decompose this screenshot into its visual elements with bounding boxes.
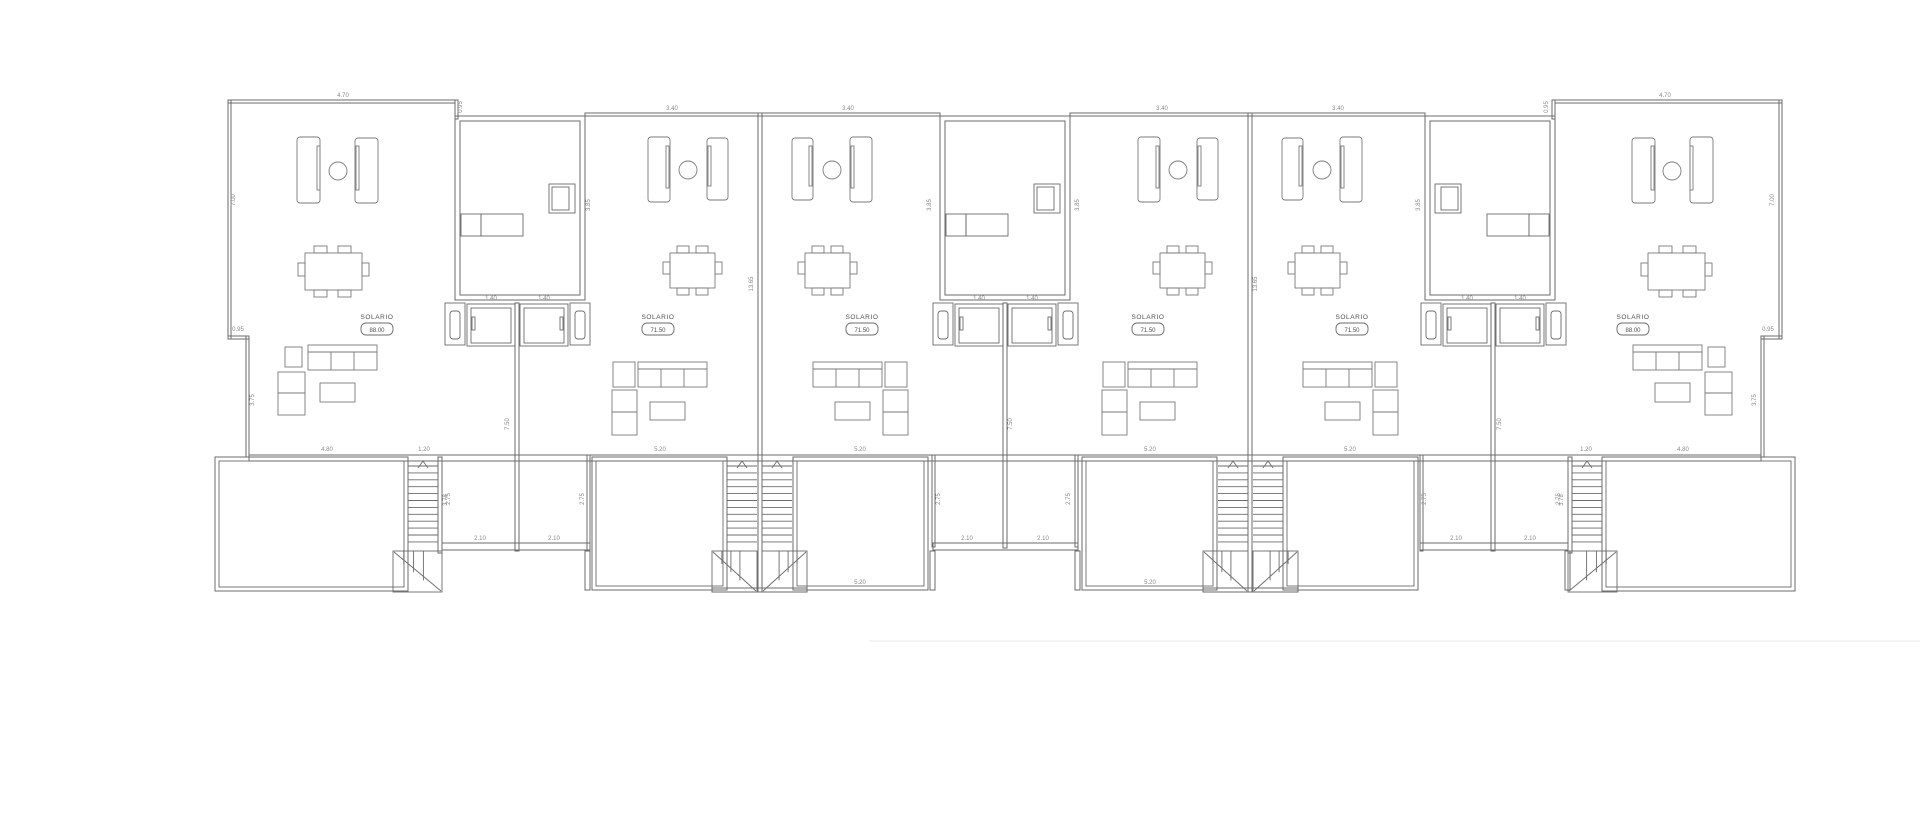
- side-table: [1375, 362, 1397, 387]
- coffee-table: [1140, 402, 1175, 420]
- dimension-text: 5.20: [1344, 447, 1356, 453]
- bulkhead-inner-wall: [945, 121, 1065, 295]
- wall-segment: [246, 336, 249, 457]
- stair-winder-diagonal: [394, 552, 441, 591]
- dimension-text: 5.20: [854, 447, 866, 453]
- terrace-outline: [1602, 457, 1795, 591]
- dimension-text: 2.10: [548, 536, 560, 542]
- stair-bulkheads: [455, 116, 1555, 300]
- dimension-text: 3.40: [1156, 106, 1168, 112]
- terrace-inner-line: [1606, 461, 1791, 587]
- bulkhead-bench: [1529, 214, 1549, 236]
- bulkhead-inner-wall: [1430, 121, 1550, 295]
- furniture-unit-e: [1282, 137, 1398, 435]
- dining-chair: [850, 262, 857, 274]
- stair-winder-diagonal: [1204, 552, 1247, 591]
- storage-box-inner: [1447, 308, 1487, 343]
- wall-segment: [1779, 100, 1782, 339]
- dimension-text: 3.40: [1332, 106, 1344, 112]
- unit-room-label: SOLARIO: [1335, 314, 1368, 321]
- dining-chair: [1321, 288, 1333, 295]
- sun-lounger-side: [851, 146, 854, 188]
- dining-chair: [831, 246, 843, 253]
- wall-segment: [228, 100, 455, 103]
- side-table-round: [1663, 162, 1681, 180]
- dimension-text: 5.20: [1144, 580, 1156, 586]
- sofa: [1633, 345, 1702, 370]
- sun-lounger-side: [666, 146, 669, 188]
- terrace-inner-line: [219, 461, 404, 587]
- walls: [228, 100, 1782, 592]
- sun-lounger: [850, 137, 872, 202]
- wall-segment: [932, 455, 935, 547]
- coffee-table: [1655, 383, 1690, 402]
- storage-box-slot: [1063, 311, 1073, 339]
- sofa: [638, 362, 707, 387]
- wall-segment: [249, 455, 1761, 461]
- wall-segment: [515, 303, 519, 551]
- sun-lounger: [792, 138, 813, 200]
- dining-chair: [1641, 263, 1648, 276]
- sofa: [813, 362, 882, 387]
- dining-chair: [1288, 262, 1295, 274]
- dimension-text: 1.20: [1580, 447, 1592, 453]
- terrace-inner-line: [797, 461, 924, 586]
- dimension-text: 3.75: [1752, 394, 1758, 406]
- stair-up-arrow: [418, 461, 428, 468]
- sofa: [1128, 362, 1197, 387]
- wall-segment: [1491, 303, 1495, 551]
- side-table: [885, 362, 907, 387]
- storage-box: [467, 304, 515, 346]
- dining-chair: [1321, 246, 1333, 253]
- terrace-outline: [1283, 457, 1418, 590]
- storage-box-slot: [450, 311, 460, 339]
- sun-lounger-side: [1156, 146, 1159, 188]
- sun-lounger-side: [1198, 146, 1201, 186]
- dining-chair: [1659, 290, 1672, 297]
- furniture-unit-d: [1102, 137, 1218, 435]
- unit-area-label: 71.50: [854, 328, 870, 334]
- dimension-text: 4.80: [1677, 447, 1689, 453]
- sun-lounger-side: [1651, 146, 1654, 190]
- terrace-outline: [215, 457, 408, 591]
- side-table-round: [1169, 161, 1187, 179]
- dimension-text: 3.85: [1416, 199, 1422, 211]
- storage-box-inner: [524, 308, 564, 343]
- side-table-round: [679, 161, 697, 179]
- wall-segment: [1565, 551, 1570, 590]
- dimension-text: 7.50: [1497, 418, 1503, 430]
- storage-box: [520, 304, 568, 346]
- side-table: [1708, 347, 1725, 367]
- wall-segment: [1075, 551, 1080, 590]
- wall-segment: [1420, 543, 1568, 550]
- dimension-text: 0.95: [458, 101, 464, 113]
- dining-table: [670, 253, 715, 288]
- dimension-text: 1.40: [973, 296, 985, 302]
- storage-units: [445, 303, 1566, 346]
- storage-box-handle: [1536, 317, 1539, 330]
- dimension-text: 13.65: [749, 276, 755, 292]
- dimension-text: 2.75: [1066, 493, 1072, 505]
- sun-lounger: [707, 138, 728, 200]
- dining-chair: [677, 288, 689, 295]
- dimension-text: 4.70: [1659, 93, 1671, 99]
- floor-plan-drawing: SOLARIO88.00SOLARIO71.50SOLARIO71.50SOLA…: [0, 0, 1920, 837]
- dimension-text: 1.40: [1461, 296, 1473, 302]
- dimension-text: 3.85: [586, 199, 592, 211]
- bulkhead-inner-wall: [460, 121, 580, 295]
- storage-box-slot: [938, 311, 948, 339]
- dining-chair: [1167, 288, 1179, 295]
- bulkhead-hatch-inner: [1037, 187, 1054, 210]
- furniture-unit-c: [792, 137, 908, 435]
- storage-box-handle: [472, 317, 475, 330]
- wall-segment: [1003, 303, 1007, 548]
- dining-chair: [831, 288, 843, 295]
- dining-chair: [1302, 246, 1314, 253]
- side-table: [1103, 362, 1125, 387]
- dimension-text: 5.20: [654, 447, 666, 453]
- sun-lounger-side: [356, 146, 359, 190]
- stair-up-arrow: [737, 461, 747, 468]
- storage-box-inner: [1012, 308, 1052, 343]
- unit-room-label: SOLARIO: [845, 314, 878, 321]
- sun-lounger-side: [708, 146, 711, 186]
- coffee-table: [835, 402, 870, 420]
- side-table-round: [1313, 161, 1331, 179]
- bulkhead-hatch: [1034, 184, 1060, 213]
- dimension-text: 1.20: [418, 447, 430, 453]
- stair-winder-diagonal: [713, 552, 756, 591]
- coffee-table: [650, 402, 685, 420]
- dimension-text: 5.20: [1144, 447, 1156, 453]
- terrace-outline: [592, 457, 727, 590]
- stair-winder-diagonal: [763, 552, 806, 591]
- dining-chair: [1153, 262, 1160, 274]
- dimension-text: 3.78: [443, 494, 449, 506]
- sofa: [308, 345, 377, 370]
- armchair: [1102, 390, 1127, 435]
- dining-table: [805, 253, 850, 288]
- dining-chair: [1167, 246, 1179, 253]
- storage-box: [1443, 304, 1491, 346]
- stair-up-arrow: [1263, 461, 1273, 468]
- dimension-text: 7.50: [1008, 418, 1014, 430]
- unit-labels: SOLARIO88.00SOLARIO71.50SOLARIO71.50SOLA…: [360, 314, 1649, 335]
- storage-box-slot: [1426, 311, 1436, 339]
- unit-room-label: SOLARIO: [1616, 314, 1649, 321]
- sun-lounger: [1197, 138, 1218, 200]
- dimension-text: 2.75: [1422, 493, 1428, 505]
- storage-box-handle: [1048, 317, 1051, 330]
- storage-box-inner: [471, 308, 511, 343]
- bulkhead-bench: [481, 214, 523, 236]
- wall-segment: [1761, 336, 1764, 457]
- sun-lounger: [297, 137, 320, 203]
- dining-chair: [314, 290, 327, 297]
- bulkhead-outer-wall: [1425, 116, 1555, 300]
- stair-winder-diagonal: [1569, 552, 1616, 591]
- dimension-text: 2.10: [961, 536, 973, 542]
- coffee-table: [1325, 402, 1360, 420]
- dining-chair: [1186, 246, 1198, 253]
- dining-chair: [1705, 263, 1712, 276]
- dining-table: [305, 253, 362, 290]
- dimension-text: 4.70: [337, 93, 349, 99]
- stair-up-arrow: [1582, 461, 1592, 468]
- dining-chair: [1683, 290, 1696, 297]
- dining-chair: [362, 263, 369, 276]
- dining-chair: [298, 263, 305, 276]
- dimension-text: 0.95: [232, 327, 244, 333]
- dining-chair: [1302, 288, 1314, 295]
- unit-area-label: 71.50: [1344, 328, 1360, 334]
- sun-lounger: [1138, 137, 1160, 202]
- bulkhead-hatch-inner: [1441, 187, 1458, 210]
- storage-box: [1496, 304, 1544, 346]
- storage-box-handle: [560, 317, 563, 330]
- wall-segment: [442, 543, 590, 550]
- dining-table: [1295, 253, 1340, 288]
- storage-box-handle: [960, 317, 963, 330]
- sun-lounger-side: [1690, 146, 1693, 190]
- side-table-round: [329, 162, 347, 180]
- side-table: [285, 347, 302, 367]
- terrace-outline: [1082, 457, 1217, 590]
- staircases: [393, 461, 1617, 592]
- dimension-text: 7.00: [231, 194, 237, 206]
- dimension-text: 0.95: [1762, 327, 1774, 333]
- storage-box: [1008, 304, 1056, 346]
- dimension-text: 0.95: [1544, 101, 1550, 113]
- unit-area-label: 71.50: [1140, 328, 1156, 334]
- dining-table: [1160, 253, 1205, 288]
- bulkhead-bench: [966, 214, 1008, 236]
- dining-chair: [314, 246, 327, 253]
- dimension-text: 3.85: [927, 199, 933, 211]
- sun-lounger-side: [809, 146, 812, 186]
- sun-lounger-side: [1299, 146, 1302, 186]
- dining-chair: [696, 246, 708, 253]
- sun-lounger: [1632, 138, 1655, 203]
- terrace-outline: [793, 457, 928, 590]
- furniture-unit-f: [1632, 137, 1732, 415]
- terrace-inner-line: [1086, 461, 1213, 586]
- dimension-text: 3.75: [250, 394, 256, 406]
- dimension-text: 1.40: [538, 296, 550, 302]
- side-table-round: [823, 161, 841, 179]
- sun-lounger-side: [1341, 146, 1344, 188]
- dining-chair: [338, 246, 351, 253]
- wall-segment: [228, 100, 231, 339]
- wall-segment: [758, 113, 762, 592]
- sun-lounger: [355, 138, 378, 203]
- dimension-text: 2.10: [1450, 536, 1462, 542]
- armchair: [278, 372, 305, 415]
- dimension-text: 4.80: [321, 447, 333, 453]
- sun-lounger: [1282, 138, 1303, 200]
- dimension-text: 5.20: [854, 580, 866, 586]
- dining-chair: [1186, 288, 1198, 295]
- dining-chair: [715, 262, 722, 274]
- dimension-text: 1.40: [485, 296, 497, 302]
- terrace-inner-line: [1287, 461, 1414, 586]
- dining-chair: [1659, 246, 1672, 253]
- dining-chair: [798, 262, 805, 274]
- sun-lounger: [1340, 137, 1362, 202]
- dimension-text: 3.85: [1075, 199, 1081, 211]
- wall-segment: [930, 551, 935, 590]
- wall-segment: [933, 543, 1078, 550]
- dining-chair: [1205, 262, 1212, 274]
- dining-chair: [1340, 262, 1347, 274]
- dimension-text: 2.75: [580, 493, 586, 505]
- dimension-text: 3.78: [1559, 494, 1565, 506]
- coffee-table: [320, 383, 355, 402]
- dimension-text: 3.40: [842, 106, 854, 112]
- storage-box-slot: [575, 311, 585, 339]
- armchair: [1705, 372, 1732, 415]
- dining-chair: [812, 288, 824, 295]
- dining-chair: [1683, 246, 1696, 253]
- stair-up-arrow: [1228, 461, 1238, 468]
- dimension-text: 1.40: [1026, 296, 1038, 302]
- storage-box: [955, 304, 1003, 346]
- unit-area-label: 88.00: [369, 328, 385, 334]
- wall-segment: [585, 551, 590, 590]
- unit-room-label: SOLARIO: [641, 314, 674, 321]
- dining-chair: [696, 288, 708, 295]
- armchair: [883, 390, 908, 435]
- dimension-text: 7.50: [505, 418, 511, 430]
- bulkhead-hatch: [1435, 184, 1461, 213]
- wall-segment: [587, 455, 590, 551]
- bulkhead-outer-wall: [455, 116, 585, 300]
- dimension-text: 1.40: [1514, 296, 1526, 302]
- bulkhead-bench: [946, 214, 966, 236]
- wall-segment: [1248, 113, 1252, 592]
- wall-segment: [1568, 457, 1572, 553]
- furniture-unit-a: [278, 137, 378, 415]
- bulkhead-outer-wall: [940, 116, 1070, 300]
- unit-area-label: 71.50: [650, 328, 666, 334]
- floor-plan-page: SOLARIO88.00SOLARIO71.50SOLARIO71.50SOLA…: [0, 0, 1920, 837]
- wall-segment: [438, 457, 442, 553]
- dining-chair: [812, 246, 824, 253]
- dining-chair: [663, 262, 670, 274]
- lower-terraces: [215, 457, 1795, 591]
- armchair: [612, 390, 637, 435]
- wall-segment: [1555, 100, 1782, 103]
- storage-box-inner: [959, 308, 999, 343]
- unit-room-label: SOLARIO: [1131, 314, 1164, 321]
- storage-box-inner: [1500, 308, 1540, 343]
- unit-room-label: SOLARIO: [360, 314, 393, 321]
- bulkhead-hatch: [549, 184, 575, 213]
- bulkhead-hatch-inner: [552, 187, 569, 210]
- dimension-text: 7.00: [1770, 194, 1776, 206]
- bulkhead-bench: [461, 214, 481, 236]
- stair-up-arrow: [772, 461, 782, 468]
- sun-lounger: [648, 137, 670, 202]
- stair-winder-diagonal: [1254, 552, 1297, 591]
- dimension-text: 2.10: [474, 536, 486, 542]
- wall-segment: [1075, 455, 1078, 547]
- dining-chair: [338, 290, 351, 297]
- dimension-text: 2.10: [1037, 536, 1049, 542]
- dining-chair: [677, 246, 689, 253]
- storage-box-slot: [1551, 311, 1561, 339]
- furniture-unit-b: [612, 137, 728, 435]
- dimension-text: 13.65: [1253, 276, 1259, 292]
- dimension-text: 2.75: [936, 493, 942, 505]
- armchair: [1373, 390, 1398, 435]
- unit-area-label: 88.00: [1625, 328, 1641, 334]
- bulkhead-bench: [1487, 214, 1529, 236]
- storage-box-handle: [1448, 317, 1451, 330]
- dimension-text: 2.10: [1524, 536, 1536, 542]
- dimension-text: 3.40: [666, 106, 678, 112]
- side-table: [613, 362, 635, 387]
- sofa: [1303, 362, 1372, 387]
- dining-table: [1648, 253, 1705, 290]
- terrace-inner-line: [596, 461, 723, 586]
